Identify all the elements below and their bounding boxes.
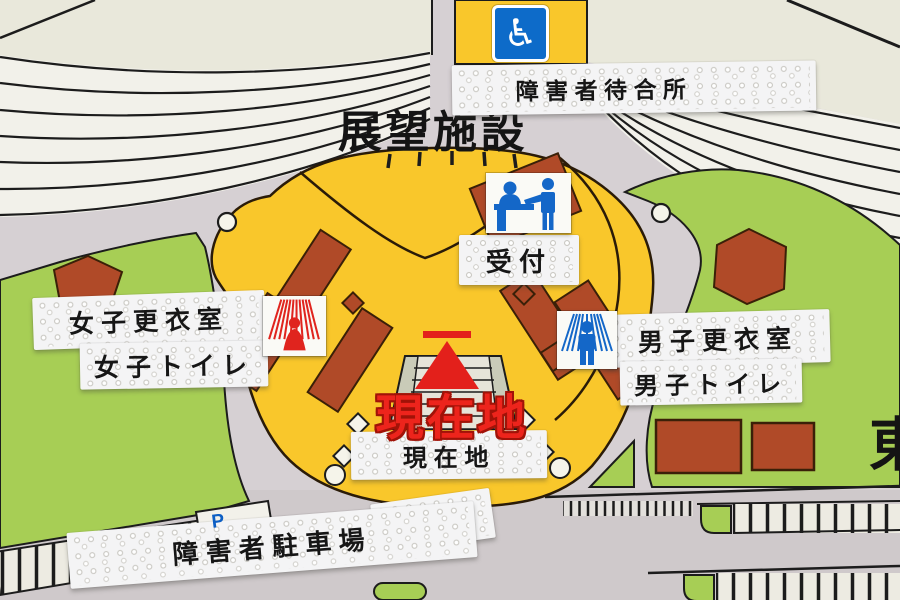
label-reception-text: 受付	[486, 242, 553, 279]
womens-shower-icon	[263, 296, 326, 356]
parking-p-icon: P	[210, 508, 243, 539]
current-location-text: 現在地	[352, 378, 552, 448]
label-womens-toilet: 女子トイレ	[80, 340, 269, 389]
traffic-island	[374, 583, 426, 600]
label-waiting-area-text: 障害者待合所	[515, 70, 692, 106]
female-shower-pictogram	[263, 296, 326, 356]
male-shower-pictogram	[557, 311, 617, 369]
east-edge-label: 東	[869, 398, 900, 482]
tactile-map: ♿ 展望施設 障害者待合所 受付 女子更衣室 女子トイレ 男子更衣室 男子トイレ…	[0, 0, 900, 600]
label-mens-changing-room-text: 男子更衣室	[638, 318, 799, 358]
label-womens-changing-room-text: 女子更衣室	[68, 299, 229, 341]
label-mens-toilet: 男子トイレ	[620, 358, 803, 405]
label-reception: 受付	[459, 235, 579, 285]
label-mens-toilet-text: 男子トイレ	[634, 363, 788, 401]
reception-desk-pictogram	[486, 173, 571, 233]
mens-shower-icon	[557, 311, 617, 369]
wheelchair-icon: ♿	[492, 5, 549, 62]
wheelchair-glyph: ♿	[503, 15, 537, 53]
label-womens-toilet-text: 女子トイレ	[94, 346, 255, 385]
label-waiting-area: 障害者待合所	[452, 60, 817, 115]
reception-icon	[486, 173, 571, 233]
